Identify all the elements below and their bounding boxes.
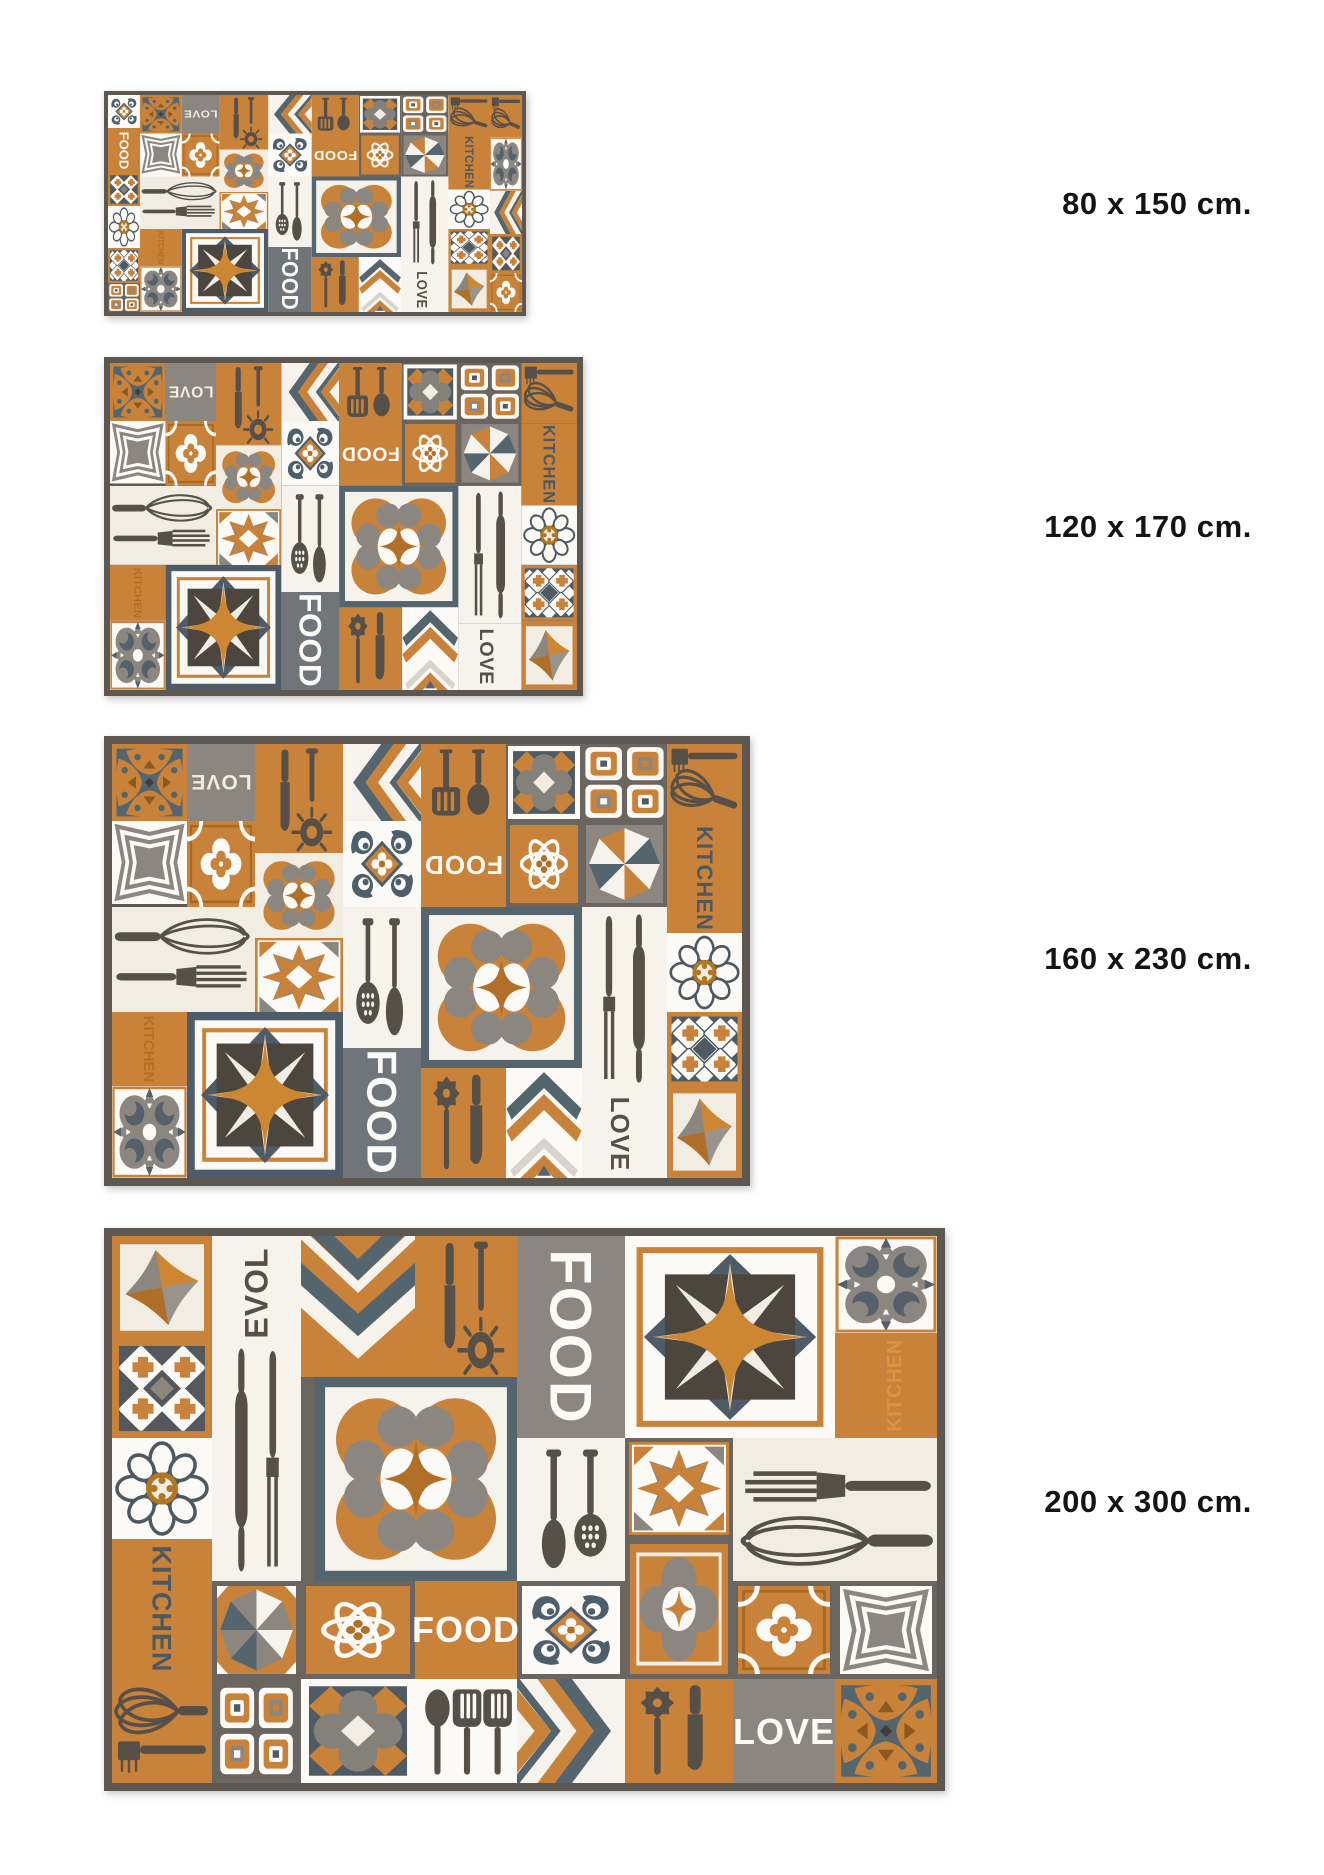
svg-text:FOOD: FOOD bbox=[116, 132, 131, 170]
svg-text:EVOL: EVOL bbox=[239, 1247, 275, 1338]
svg-text:LOVE: LOVE bbox=[733, 1711, 835, 1752]
svg-text:FOOD: FOOD bbox=[412, 1609, 520, 1650]
svg-text:KITCHEN: KITCHEN bbox=[884, 1339, 906, 1431]
svg-text:KITCHEN: KITCHEN bbox=[147, 1546, 177, 1673]
svg-text:FOOD: FOOD bbox=[538, 1249, 603, 1425]
